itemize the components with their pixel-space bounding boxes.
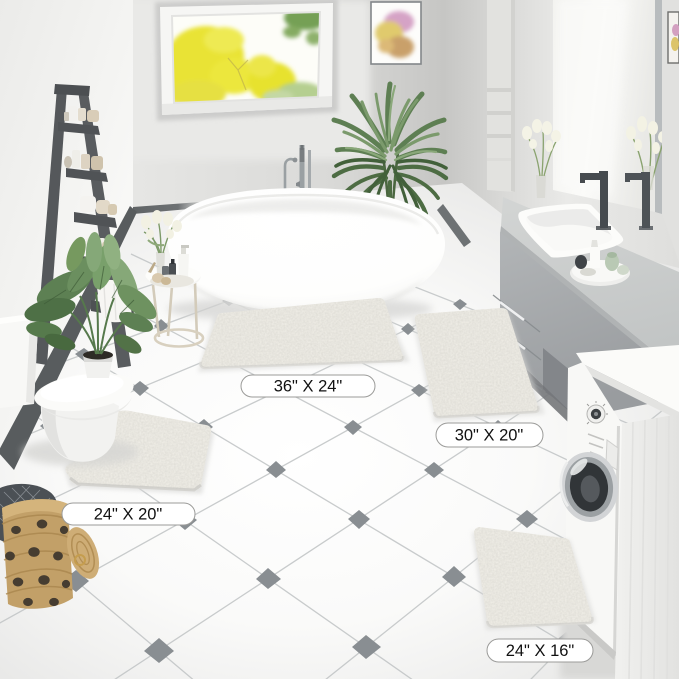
svg-text:24" X 16": 24" X 16" bbox=[506, 642, 575, 660]
svg-text:30" X 20": 30" X 20" bbox=[455, 427, 524, 445]
svg-text:36" X 24": 36" X 24" bbox=[274, 378, 343, 396]
svg-text:24" X 20": 24" X 20" bbox=[94, 506, 163, 524]
